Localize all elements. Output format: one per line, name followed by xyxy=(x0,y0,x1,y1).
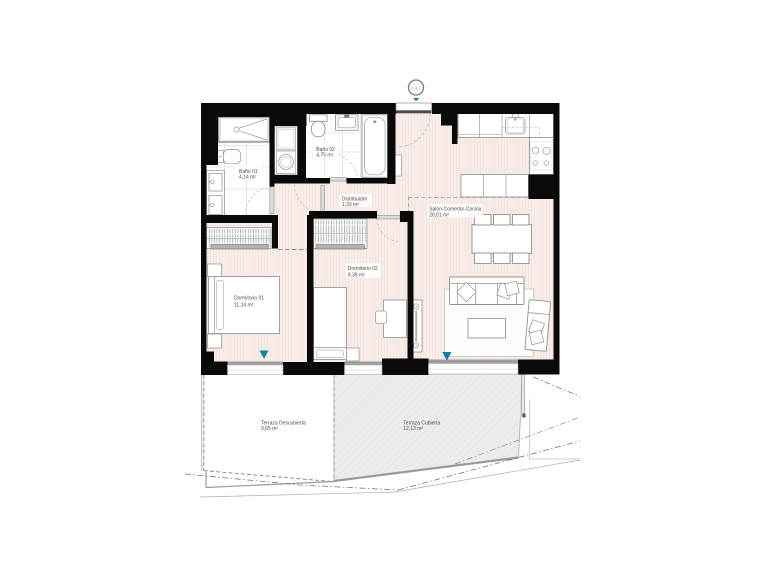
svg-text:9,65 m²: 9,65 m² xyxy=(261,426,278,432)
svg-text:4,14 m²: 4,14 m² xyxy=(239,174,256,180)
svg-text:1,33 m²: 1,33 m² xyxy=(342,202,359,208)
svg-text:9,39 m²: 9,39 m² xyxy=(348,273,365,279)
svg-text:Dormitorio 01: Dormitorio 01 xyxy=(234,296,264,302)
svg-text:26,01 m²: 26,01 m² xyxy=(429,212,449,218)
svg-text:11,14 m²: 11,14 m² xyxy=(234,302,254,308)
svg-text:4,75 m²: 4,75 m² xyxy=(316,152,333,158)
svg-text:Dormitorio 02: Dormitorio 02 xyxy=(348,266,378,272)
svg-text:12,13 m²: 12,13 m² xyxy=(403,426,423,432)
svg-text:1.4.2: 1.4.2 xyxy=(411,85,421,90)
